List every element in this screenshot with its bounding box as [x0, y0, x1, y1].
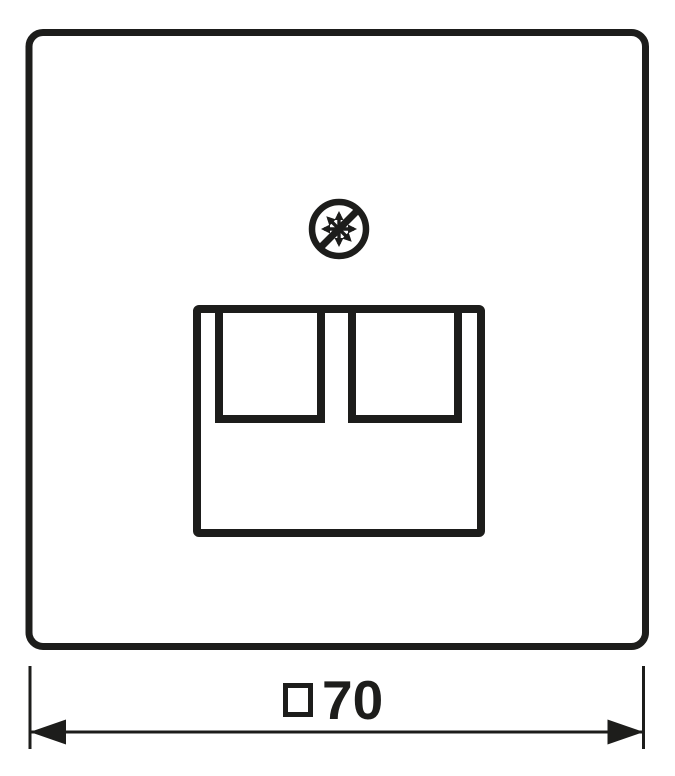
asterisk-tip-bottom — [335, 238, 344, 247]
dimension-square-symbol — [286, 686, 311, 715]
cover-plate-outline — [29, 33, 646, 647]
dimension-arrow-left — [30, 720, 66, 745]
dimension-annotation: 70 — [30, 666, 644, 749]
dimension-value: 70 — [322, 669, 383, 731]
asterisk-tip-right — [348, 225, 357, 234]
prohibition-asterisk-icon — [312, 202, 366, 256]
dimension-drawing-canvas: 70 — [0, 0, 675, 776]
jack-port-left — [219, 309, 321, 419]
asterisk-tip-top — [335, 211, 344, 220]
jack-port-right — [352, 309, 458, 419]
asterisk-tip-left — [321, 225, 330, 234]
dimension-arrow-right — [608, 720, 644, 745]
technical-drawing: 70 — [0, 0, 675, 776]
socket-opening — [197, 309, 481, 533]
